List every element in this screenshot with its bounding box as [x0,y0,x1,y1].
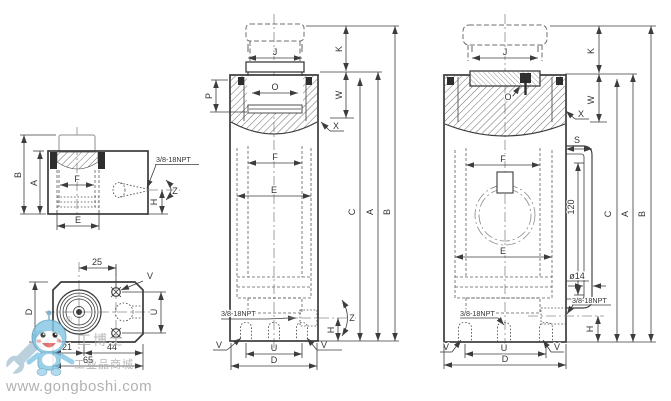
dim-25: 25 [92,257,102,267]
registered-mark: ® [66,315,72,324]
dim-label-h: H [149,199,159,206]
dim-label-d: D [271,355,278,365]
dim-label-j: J [503,47,508,57]
dim-label-v-left: V [216,340,222,350]
view-left-side-section: F E A B 3/8-18NPT Z H [13,127,199,230]
dim-label-z: Z [349,313,355,323]
port-label: 3/8-18NPT [221,309,256,318]
dim-label-d: D [24,308,34,315]
dim-label-u: U [501,343,508,353]
dim-label-c: C [603,210,613,217]
dim-label-x: X [333,121,339,131]
dim-label-c: C [347,208,357,215]
port-label: 3/8-18NPT [156,155,191,164]
watermark-brand: 工博士 [77,332,125,348]
dim-label-a: A [620,211,630,217]
view-right-side-section: J O K W X S 120 ø14 [440,14,656,369]
dim-label-w: W [334,90,344,99]
dim-label-e: E [75,215,81,225]
dim-label-x: X [578,109,584,119]
dim-label-f: F [74,174,80,184]
dim-label-f: F [272,152,278,162]
dim-label-u: U [149,309,159,316]
dim-label-e: E [500,246,506,256]
dim-label-k: K [334,46,344,52]
dim-label-p: P [204,93,214,99]
dim-label-w: W [586,95,596,104]
dim-120: 120 [566,199,576,214]
dim-label-a: A [29,180,39,186]
dim-label-h: H [585,326,595,333]
dim-label-d: D [502,354,509,364]
dim-label-v-right: V [321,340,327,350]
dim-label-o: O [271,82,278,92]
watermark-site: www.gongboshi.com [5,378,152,395]
dim-label-b: B [13,172,23,178]
dim-label-e: E [271,185,277,195]
dim-label-v-right: V [554,342,560,352]
view-front-section: J O P K W X F E [204,14,399,370]
dim-label-f: F [500,154,506,164]
dim-label-a: A [365,209,375,215]
dim-label-o: O [504,92,511,102]
dim-label-j: J [273,47,278,57]
dim-label-s: S [574,135,580,145]
dim-label-b: B [637,211,647,217]
dim-label-k: K [586,48,596,54]
dim-label-v: V [147,271,153,281]
dim-label-h: H [326,327,336,334]
dim-dia14: ø14 [569,271,585,281]
drawing-canvas: F E A B 3/8-18NPT Z H [0,0,671,401]
dim-label-b: B [382,209,392,215]
dim-label-z: Z [172,186,178,196]
port-bottom-label: 3/8-18NPT [460,309,495,318]
dim-label-u: U [271,343,278,353]
port-side-label: 3/8-18NPT [572,296,607,305]
technical-drawing: F E A B 3/8-18NPT Z H [0,0,671,401]
watermark-mall: 工业品商城 [74,357,134,371]
